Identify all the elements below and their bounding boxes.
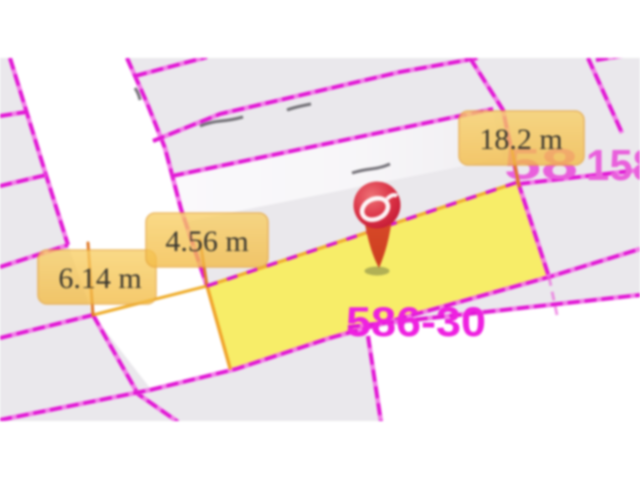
svg-text:6.14 m: 6.14 m — [58, 262, 141, 295]
svg-text:158: 158 — [586, 141, 640, 190]
svg-text:4.56 m: 4.56 m — [165, 225, 248, 258]
svg-text:18.2 m: 18.2 m — [479, 123, 562, 156]
svg-text:586-30: 586-30 — [346, 298, 486, 345]
